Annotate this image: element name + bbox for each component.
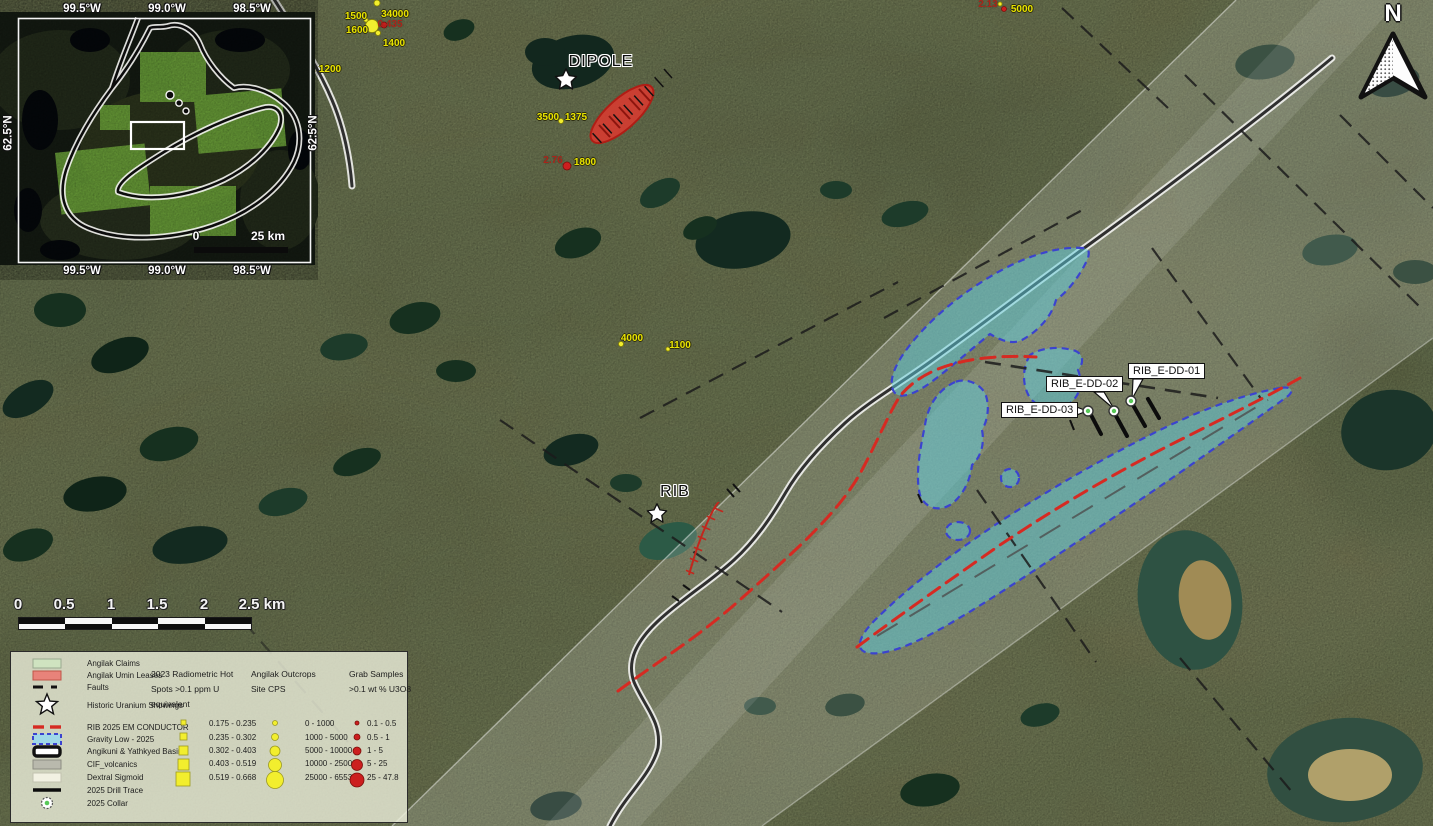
scalebar-tick: 2 — [200, 597, 208, 612]
legend-class-label: 0.403 - 0.519 — [209, 760, 256, 769]
cps-label: 1600 — [346, 26, 368, 36]
inset-lat-left: 62.5°N — [3, 115, 15, 150]
legend-item-label: Gravity Low - 2025 — [87, 736, 154, 745]
legend-item-label: Angilak Claims — [87, 660, 140, 669]
north-arrow-label: N — [1384, 2, 1401, 26]
scalebar — [18, 617, 252, 630]
legend-symbols — [11, 652, 81, 822]
gravity-swatch — [33, 734, 61, 744]
legend-item-label: CIF_volcanics — [87, 761, 137, 770]
inset-lon-top-3: 98.5°W — [233, 4, 271, 16]
cps-label: 1800 — [574, 158, 596, 168]
legend-class-label: 0.235 - 0.302 — [209, 734, 256, 743]
grab-label: 0.435 — [377, 20, 402, 30]
inset-scalebar — [194, 247, 288, 253]
scalebar-tick: 0.5 — [54, 597, 75, 612]
inset-map[interactable]: 99.5°W 99.0°W 98.5°W 99.5°W 99.0°W 98.5°… — [0, 0, 318, 280]
inset-lon-top-1: 99.5°W — [63, 4, 101, 16]
cps-label: 1200 — [319, 65, 341, 75]
pale-swatch — [33, 773, 61, 782]
legend-item-label: Dextral Sigmoid — [87, 774, 143, 783]
grab-label: 2.76 — [543, 156, 562, 166]
legend-item-label: 2025 Drill Trace — [87, 787, 143, 796]
legend-radiometric-title: equivalent — [151, 700, 190, 709]
cps-label: 3500 — [537, 113, 559, 123]
legend-class-label: 1000 - 5000 — [305, 734, 348, 743]
claims-swatch — [33, 659, 61, 668]
legend-item-label: Faults — [87, 684, 109, 693]
cps-label: 1375 — [565, 113, 587, 123]
drillhole-callout-02: RIB_E-DD-02 — [1046, 376, 1123, 392]
inset-scale-max: 25 km — [251, 230, 285, 242]
leases-swatch — [33, 671, 61, 680]
legend-grab-title: >0.1 wt % U3O8 — [349, 685, 411, 694]
legend-class-label: 5 - 25 — [367, 760, 387, 769]
scalebar-tick: 1 — [107, 597, 115, 612]
scalebar-tick: 0 — [14, 597, 22, 612]
legend-outcrops-title: Site CPS — [251, 685, 286, 694]
cps-label: 4000 — [621, 334, 643, 344]
inset-scale-zero: 0 — [193, 230, 200, 242]
cps-label: 1100 — [669, 341, 691, 351]
legend-grab-title: Grab Samples — [349, 670, 403, 679]
legend-item-label: 2025 Collar — [87, 800, 128, 809]
inset-lat-right: 62.5°N — [308, 115, 320, 150]
legend-class-label: 0.5 - 1 — [367, 734, 390, 743]
cps-label: 1400 — [383, 39, 405, 49]
legend-class-label: 0.1 - 0.5 — [367, 720, 396, 729]
legend-outcrops-title: Angilak Outcrops — [251, 670, 316, 679]
legend-class-label: 25 - 47.8 — [367, 774, 399, 783]
legend-panel: Angilak Claims Angilak Umin Leases Fault… — [10, 651, 408, 823]
inset-lon-bottom-2: 99.0°W — [148, 266, 186, 278]
collar-symbol — [42, 798, 53, 809]
star-symbol — [37, 694, 58, 714]
drillhole-callout-03: RIB_E-DD-03 — [1001, 402, 1078, 418]
map-canvas[interactable]: 99.5°W 99.0°W 98.5°W 99.5°W 99.0°W 98.5°… — [0, 0, 1433, 826]
inset-lon-top-2: 99.0°W — [148, 4, 186, 16]
cps-label: 1500 — [345, 12, 367, 22]
legend-radiometric-title: 2023 Radiometric Hot — [151, 670, 233, 679]
basin-outline-symbol — [34, 747, 60, 756]
legend-class-label: 0.175 - 0.235 — [209, 720, 256, 729]
cps-label: 5000 — [1011, 5, 1033, 15]
drillhole-callout-01: RIB_E-DD-01 — [1128, 363, 1205, 379]
grab-label: 2.13 — [978, 0, 997, 10]
place-label-dipole: DIPOLE — [569, 54, 634, 70]
legend-class-label: 0.302 - 0.403 — [209, 747, 256, 756]
place-label-rib: RIB — [660, 484, 690, 500]
scalebar-tick: 2.5 km — [239, 597, 286, 612]
inset-lon-bottom-1: 99.5°W — [63, 266, 101, 278]
scalebar-tick: 1.5 — [147, 597, 168, 612]
legend-class-label: 0 - 1000 — [305, 720, 334, 729]
outcrops-symbols — [255, 714, 299, 814]
legend-class-label: 0.519 - 0.668 — [209, 774, 256, 783]
legend-radiometric-title: Spots >0.1 ppm U — [151, 685, 219, 694]
radiometric-symbols — [163, 714, 203, 814]
inset-lon-bottom-3: 98.5°W — [233, 266, 271, 278]
legend-class-label: 1 - 5 — [367, 747, 383, 756]
gray-swatch — [33, 760, 61, 769]
